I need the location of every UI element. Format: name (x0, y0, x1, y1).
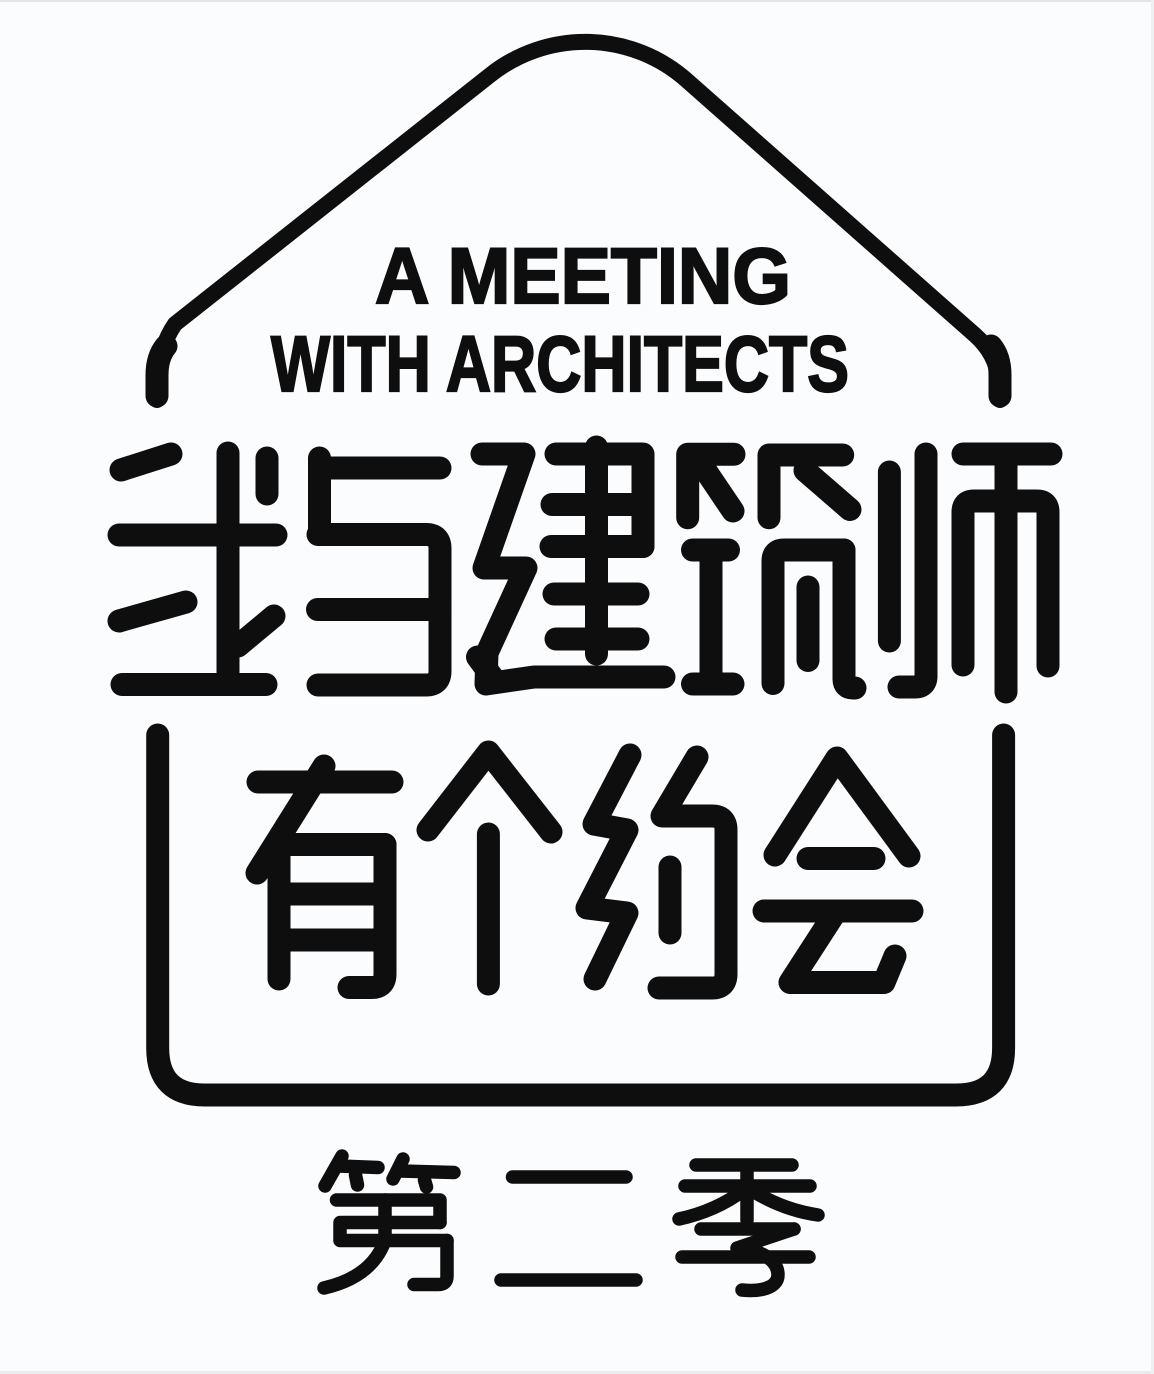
svg-text:A MEETING: A MEETING (375, 231, 791, 320)
svg-text:WITH ARCHITECTS: WITH ARCHITECTS (271, 319, 849, 408)
